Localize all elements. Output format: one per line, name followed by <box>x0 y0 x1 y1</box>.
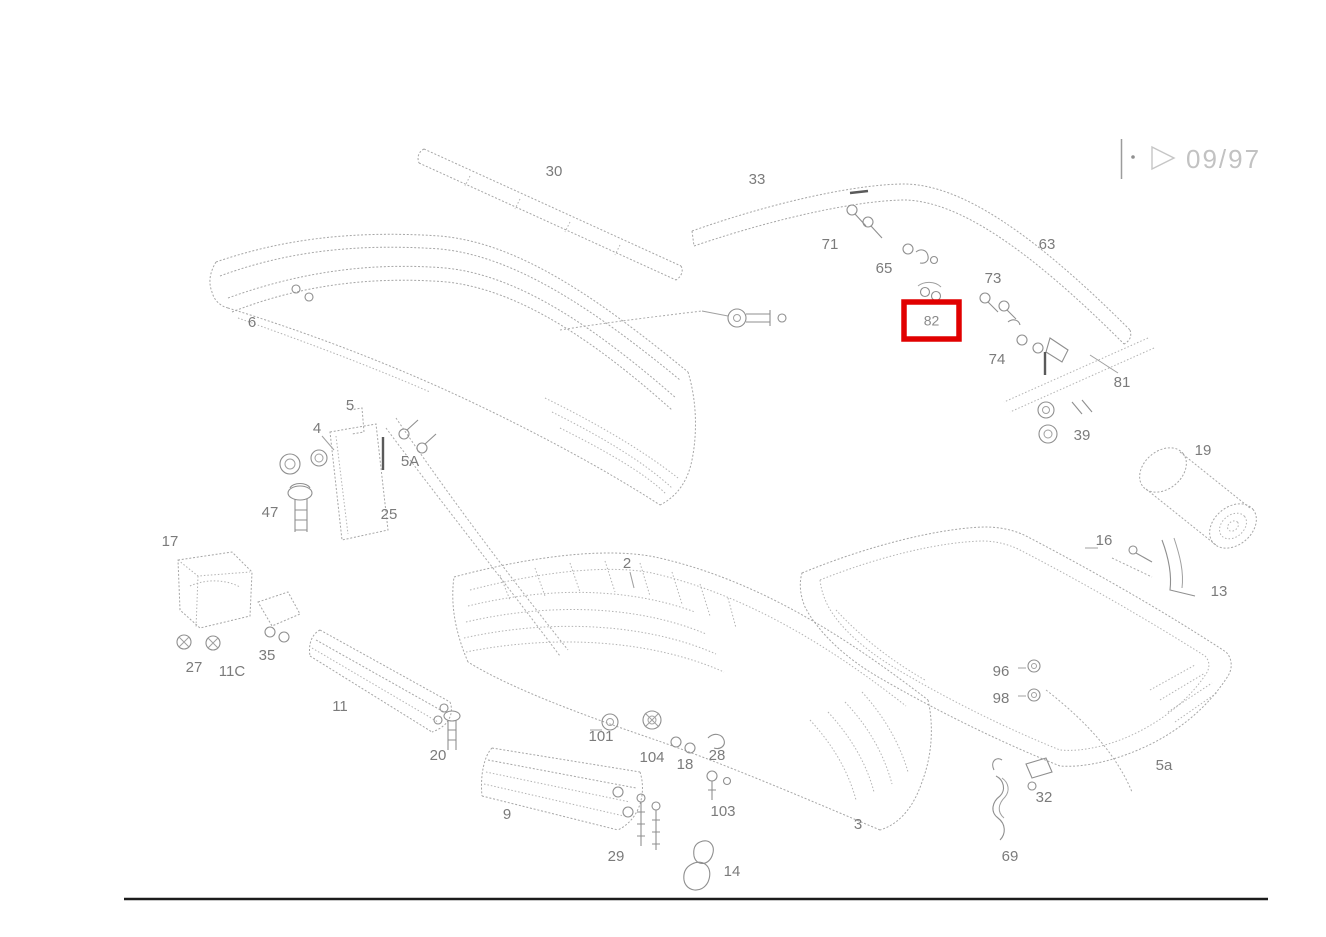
part-label-47[interactable]: 47 <box>262 504 279 521</box>
part-label-32[interactable]: 32 <box>1036 789 1053 806</box>
clip-14 <box>684 841 713 890</box>
parts-diagram-page: 82 3033716563737481391916136455A47251727… <box>0 0 1326 937</box>
part-label-101[interactable]: 101 <box>588 728 613 745</box>
bracket-13 <box>1129 538 1195 596</box>
part-label-19[interactable]: 19 <box>1195 442 1212 459</box>
part-label-28[interactable]: 28 <box>709 747 726 764</box>
header-dot <box>1131 155 1135 159</box>
part-label-13[interactable]: 13 <box>1211 583 1228 600</box>
part-label-63[interactable]: 63 <box>1039 236 1056 253</box>
part-label-14[interactable]: 14 <box>724 863 741 880</box>
part-label-11[interactable]: 11 <box>332 698 348 715</box>
clips-96-98 <box>1018 660 1132 792</box>
part-label-98[interactable]: 98 <box>993 690 1010 707</box>
panel-grommet-above-highlight <box>918 282 941 300</box>
part-label-71[interactable]: 71 <box>822 236 839 253</box>
nut-18 <box>685 743 695 753</box>
part-label-29[interactable]: 29 <box>608 848 625 865</box>
part-label-6[interactable]: 6 <box>248 314 256 331</box>
part-label-5A[interactable]: 5A <box>401 453 419 470</box>
top-panel-part <box>692 184 1154 412</box>
part-label-9[interactable]: 9 <box>503 806 511 823</box>
bracket-cluster-left <box>280 408 436 540</box>
s-hook-69 <box>993 759 1008 840</box>
part-label-5a[interactable]: 5a <box>1156 757 1173 774</box>
part-label-73[interactable]: 73 <box>985 270 1002 287</box>
highlighted-part-callout[interactable]: 82 <box>904 302 959 339</box>
part-label-39[interactable]: 39 <box>1074 427 1091 444</box>
bracket-32 <box>1026 758 1052 790</box>
mounting-rail-11 <box>309 630 451 732</box>
panel-screw-cluster-71 <box>847 205 882 238</box>
part-label-2[interactable]: 2 <box>623 555 631 572</box>
part-label-103[interactable]: 103 <box>710 803 735 820</box>
bracket-17-box <box>178 552 252 628</box>
part-label-81[interactable]: 81 <box>1114 374 1131 391</box>
middle-bumper-shell <box>453 553 932 830</box>
part-label-11C[interactable]: 11C <box>219 663 246 680</box>
panel-clip-cluster-65 <box>903 244 938 264</box>
part-label-5[interactable]: 5 <box>346 397 354 414</box>
part-label-69[interactable]: 69 <box>1002 848 1019 865</box>
panel-fastener-cluster-74 <box>1017 335 1068 375</box>
part-label-4[interactable]: 4 <box>313 420 321 437</box>
bolt-103 <box>707 771 731 800</box>
revision-header: 09/97 <box>1122 139 1262 179</box>
pin-fastener <box>560 309 786 330</box>
part-label-16[interactable]: 16 <box>1096 532 1113 549</box>
part-label-65[interactable]: 65 <box>876 260 893 277</box>
part-label-3[interactable]: 3 <box>854 816 862 833</box>
part-label-35[interactable]: 35 <box>259 647 276 664</box>
part-label-30[interactable]: 30 <box>546 163 563 180</box>
revision-date: 09/97 <box>1186 144 1261 174</box>
screw-20 <box>444 711 460 750</box>
part-label-33[interactable]: 33 <box>749 171 766 188</box>
part-label-96[interactable]: 96 <box>993 663 1010 680</box>
part-labels: 3033716563737481391916136455A4725172711C… <box>162 163 1228 880</box>
lead-line-16 <box>1085 548 1152 577</box>
panel-screw-cluster-73 <box>980 293 1020 325</box>
right-tray-shell <box>800 527 1231 766</box>
part-label-20[interactable]: 20 <box>430 747 447 764</box>
part-label-104[interactable]: 104 <box>639 749 664 766</box>
screws-29 <box>637 794 660 850</box>
bracket-35 <box>258 592 300 642</box>
part-label-27[interactable]: 27 <box>186 659 203 676</box>
left-bumper-shell <box>210 234 696 656</box>
washer-104 <box>643 711 681 747</box>
part-label-17[interactable]: 17 <box>162 533 179 550</box>
highlighted-part-number[interactable]: 82 <box>924 313 940 329</box>
part-label-74[interactable]: 74 <box>989 351 1006 368</box>
part-label-18[interactable]: 18 <box>677 756 694 773</box>
validity-arrow-icon <box>1152 147 1174 169</box>
lock-washers <box>177 635 220 650</box>
part-label-25[interactable]: 25 <box>381 506 398 523</box>
